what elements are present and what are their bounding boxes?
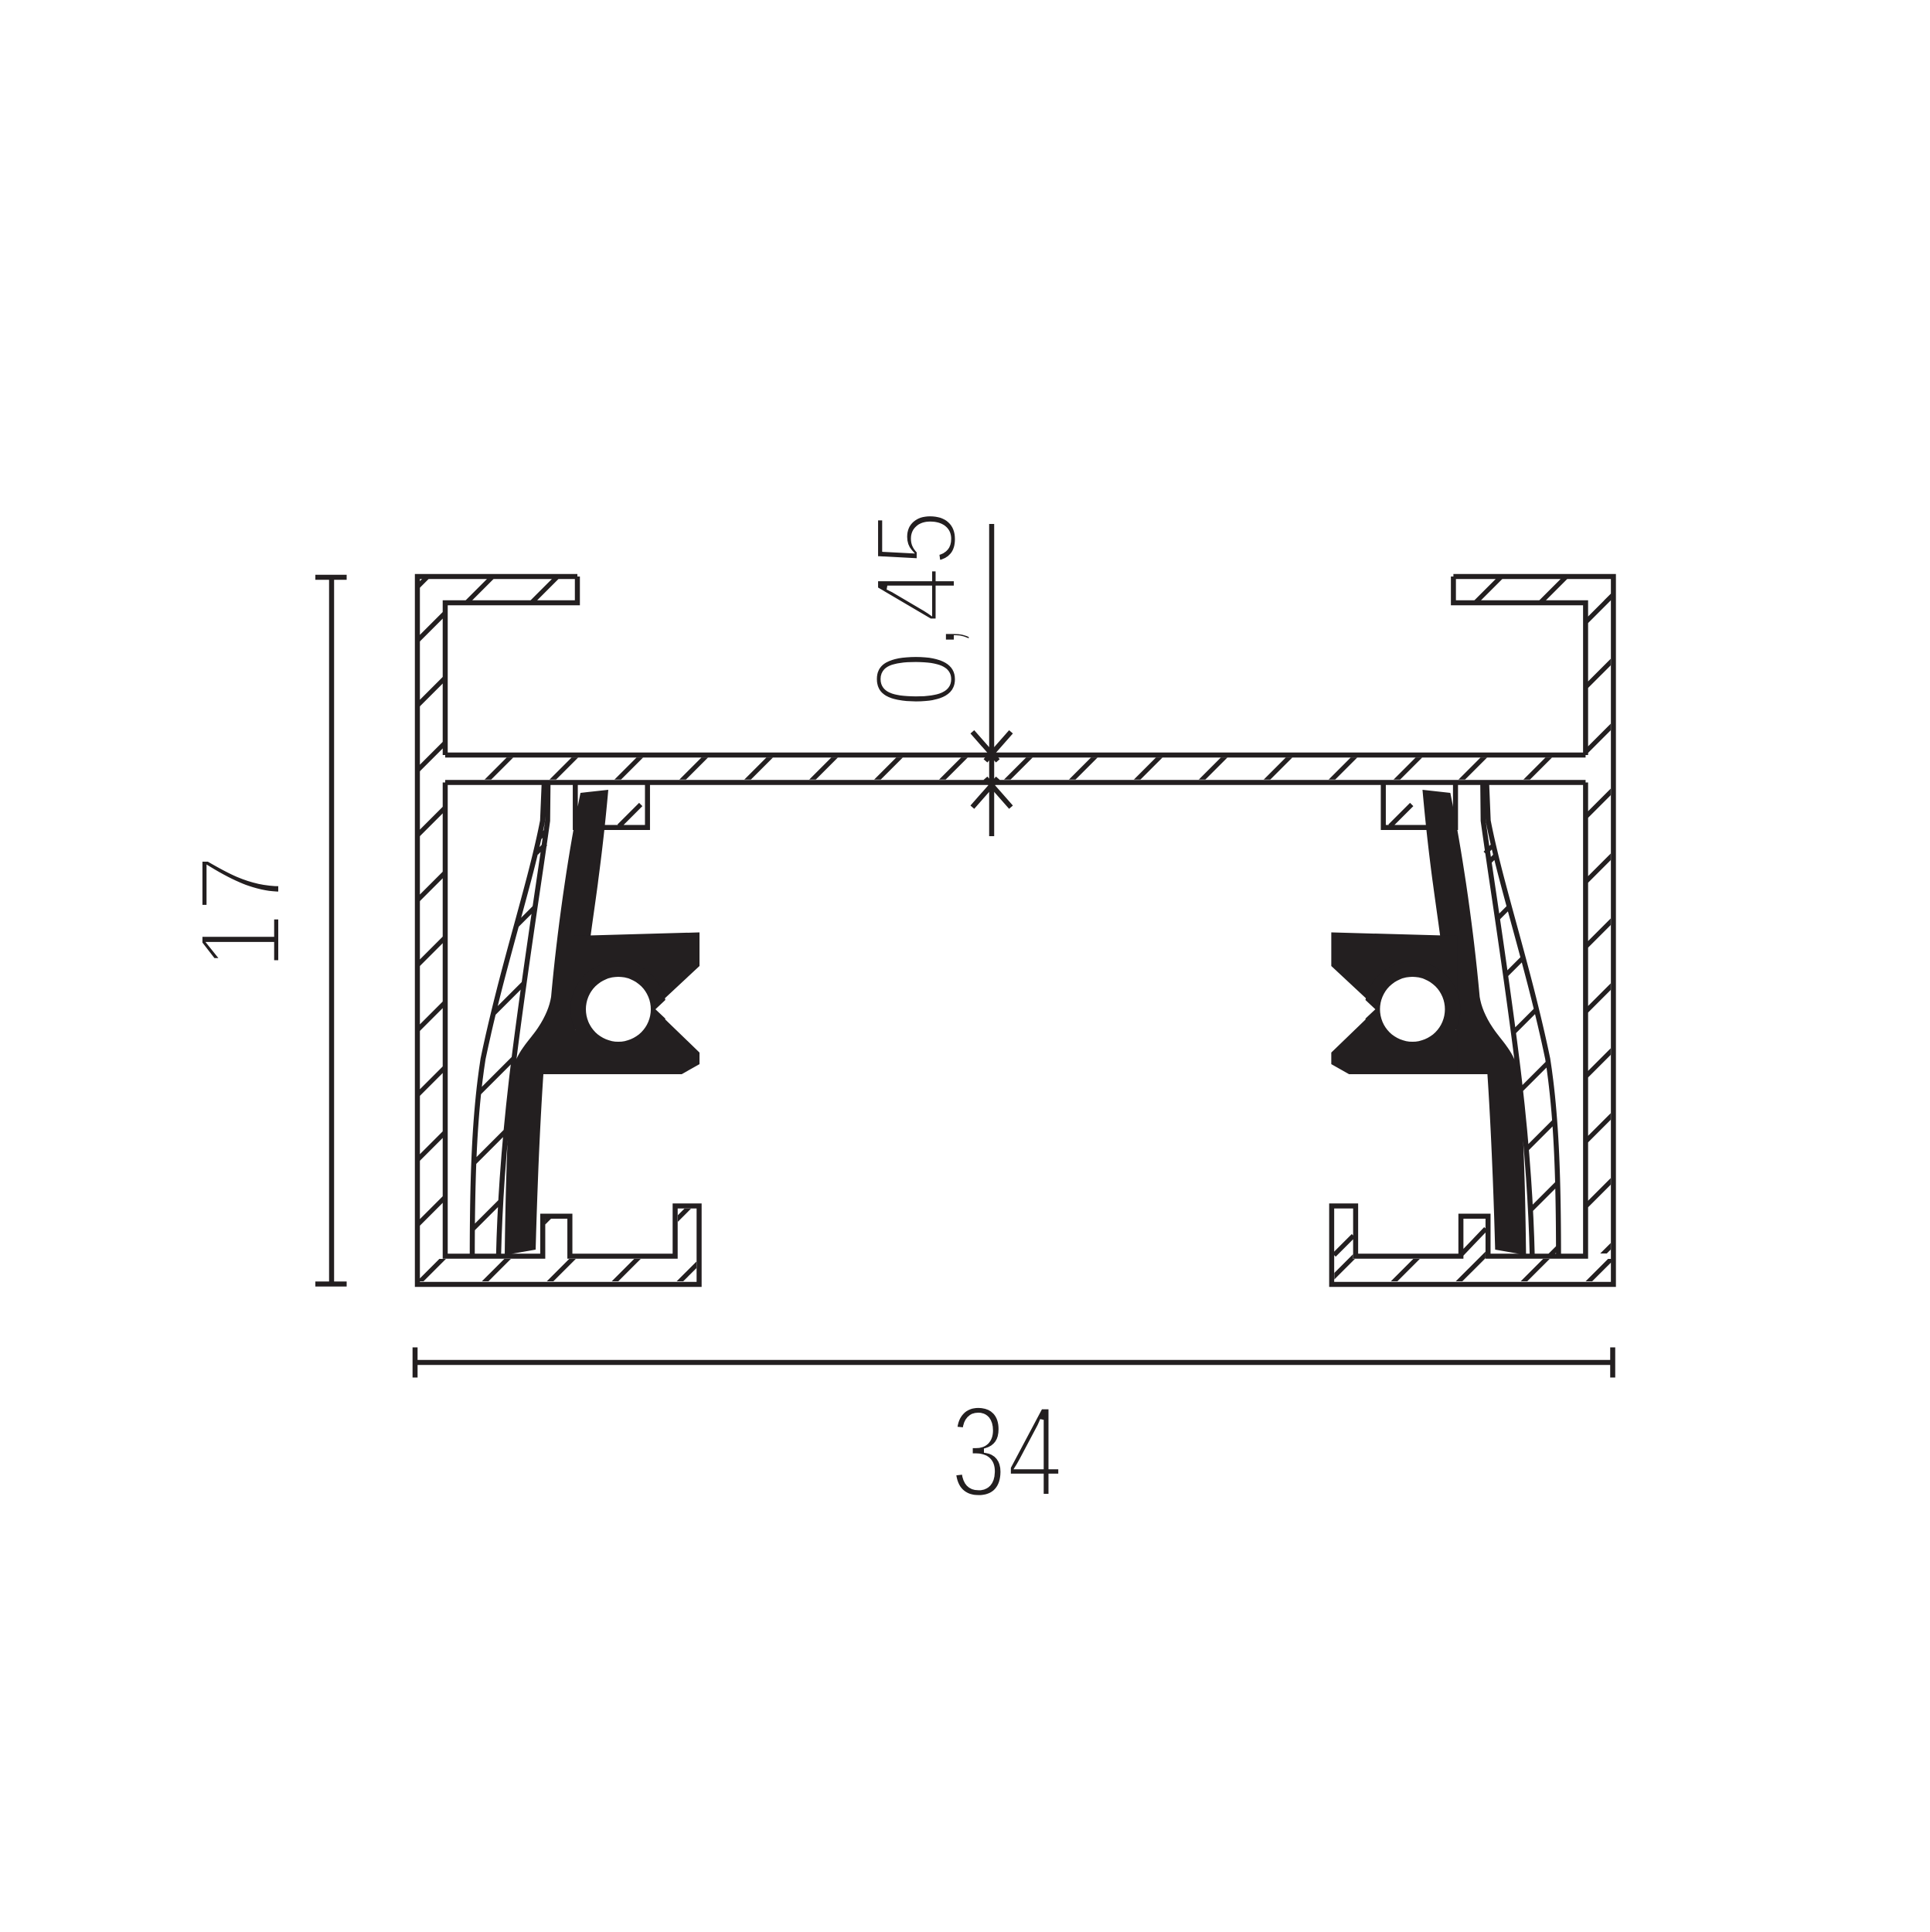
svg-text:17: 17	[175, 855, 306, 971]
svg-text:34: 34	[951, 1379, 1064, 1523]
svg-text:0,45: 0,45	[850, 510, 981, 707]
